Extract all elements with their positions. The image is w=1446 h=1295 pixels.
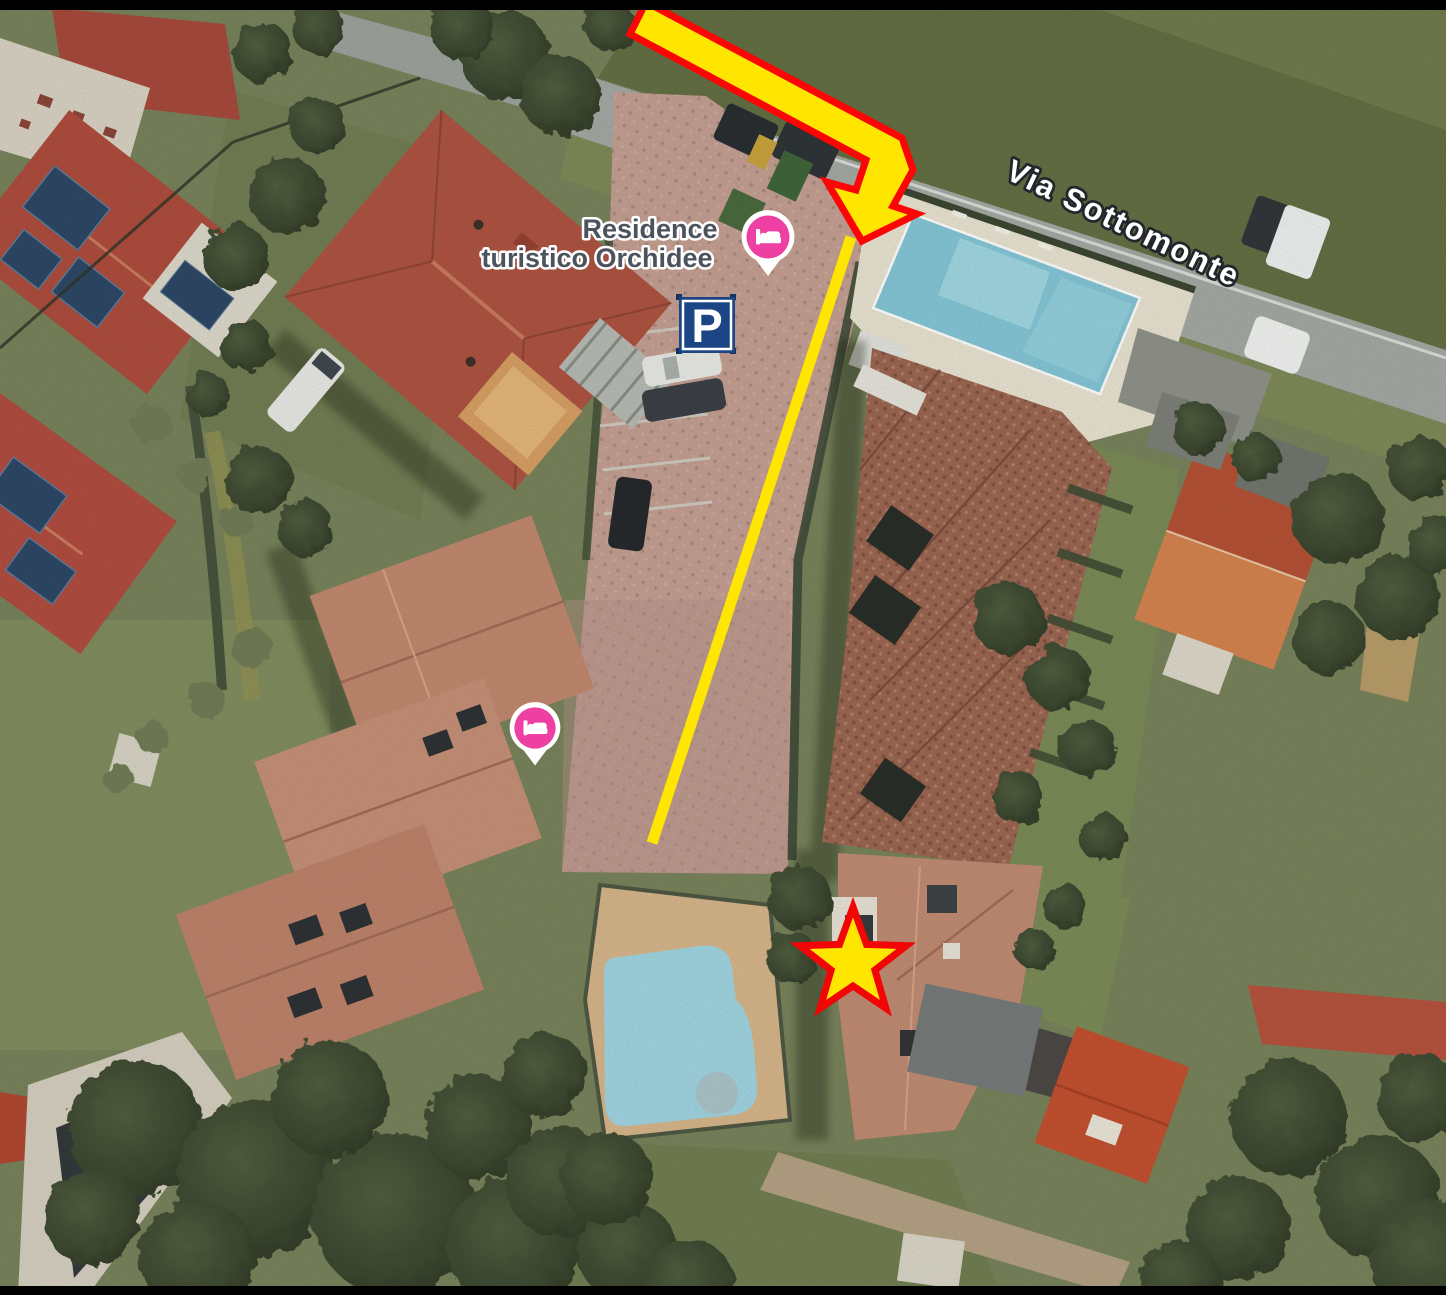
letterbox-top (0, 0, 1446, 10)
letterbox-bottom (0, 1286, 1446, 1295)
parking-icon: P (691, 299, 722, 352)
screenshot-root: Residence turistico Orchidee Via Sottomo… (0, 0, 1446, 1295)
svg-text:Residence: Residence (582, 214, 717, 244)
parking-sign[interactable]: P (676, 294, 736, 354)
satellite-map[interactable]: Residence turistico Orchidee Via Sottomo… (0, 0, 1446, 1295)
photo-grain (0, 0, 1446, 1295)
svg-text:turistico Orchidee: turistico Orchidee (481, 243, 712, 273)
